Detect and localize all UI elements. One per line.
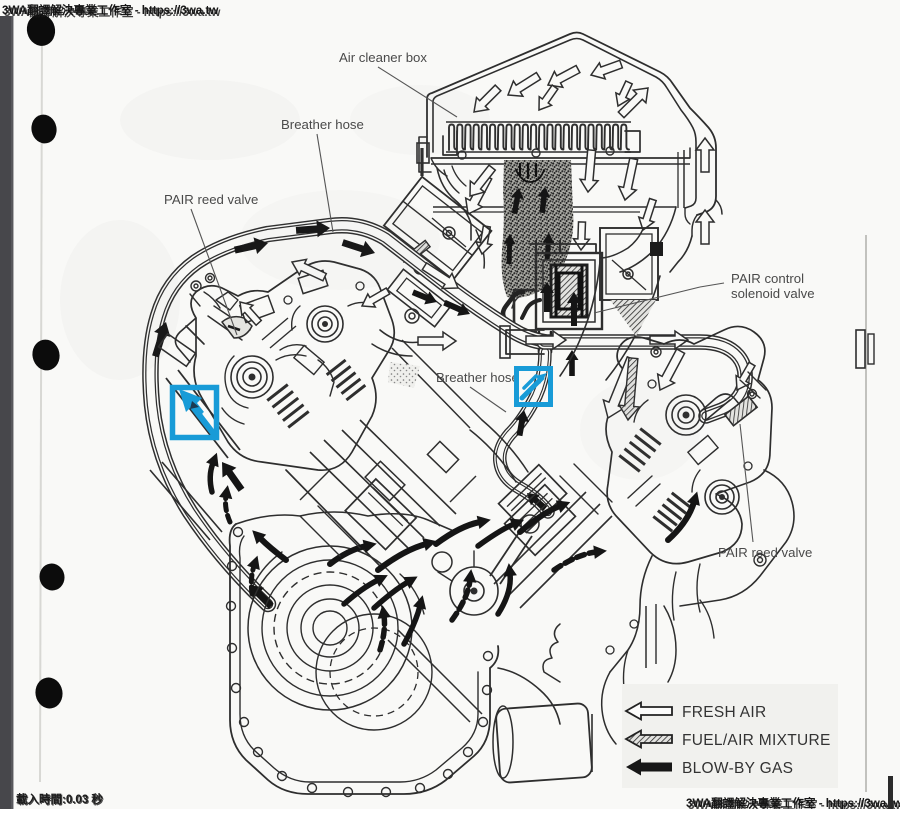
svg-text:PAIR reed valve: PAIR reed valve bbox=[718, 545, 812, 560]
svg-text:Air cleaner box: Air cleaner box bbox=[339, 50, 427, 65]
svg-text:FUEL/AIR MIXTURE: FUEL/AIR MIXTURE bbox=[682, 732, 831, 749]
svg-text:PAIR control: PAIR control bbox=[731, 271, 804, 286]
svg-text:Breather hose: Breather hose bbox=[281, 117, 364, 132]
svg-text:3WA翻譯解決專業工作室 - https://3wa.tw: 3WA翻譯解決專業工作室 - https://3wa.tw bbox=[4, 5, 221, 19]
svg-text:3WA翻譯解決專業工作室 - https://3wa.tw: 3WA翻譯解決專業工作室 - https://3wa.tw bbox=[688, 798, 900, 809]
svg-text:FRESH AIR: FRESH AIR bbox=[682, 704, 767, 721]
svg-text:PAIR reed valve: PAIR reed valve bbox=[164, 192, 258, 207]
svg-text:BLOW-BY GAS: BLOW-BY GAS bbox=[682, 760, 793, 777]
svg-text:Breather hose: Breather hose bbox=[436, 370, 519, 385]
svg-text:solenoid valve: solenoid valve bbox=[731, 286, 815, 301]
svg-text:載入時間:0.03 秒: 載入時間:0.03 秒 bbox=[17, 793, 104, 807]
